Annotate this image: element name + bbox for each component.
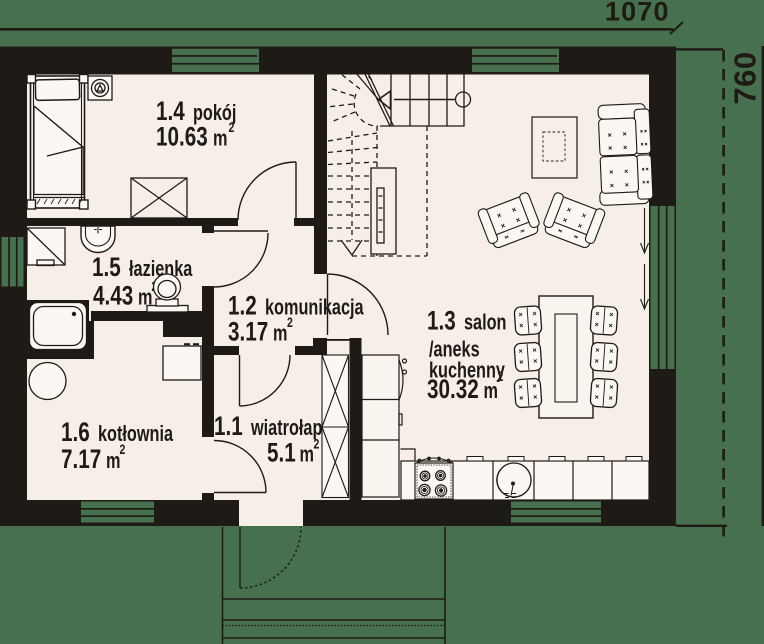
- svg-text:2: 2: [120, 442, 126, 458]
- svg-text:1.6: 1.6: [61, 418, 90, 448]
- svg-text:kotłownia: kotłownia: [98, 421, 174, 446]
- svg-text:m: m: [300, 442, 314, 467]
- svg-text:7.17: 7.17: [61, 445, 101, 475]
- svg-text:1.5: 1.5: [92, 253, 121, 283]
- svg-text:1.3: 1.3: [427, 306, 456, 336]
- svg-text:2: 2: [314, 436, 320, 452]
- svg-text:5.1: 5.1: [267, 438, 296, 468]
- svg-text:m: m: [106, 448, 120, 473]
- svg-text:10.63: 10.63: [156, 122, 208, 152]
- svg-text:4.43: 4.43: [93, 281, 133, 311]
- svg-text:2: 2: [498, 369, 504, 385]
- svg-text:komunikacja: komunikacja: [265, 295, 364, 320]
- svg-text:m: m: [273, 321, 287, 346]
- svg-text:m: m: [213, 126, 227, 151]
- svg-text:2: 2: [229, 120, 235, 136]
- svg-text:2: 2: [287, 315, 293, 331]
- svg-text:1070: 1070: [605, 0, 670, 27]
- svg-text:wiatrołap: wiatrołap: [250, 415, 322, 440]
- svg-text:1.1: 1.1: [214, 412, 243, 442]
- svg-text:30.32: 30.32: [427, 375, 479, 405]
- svg-text:3.17: 3.17: [228, 317, 268, 347]
- svg-text:salon: salon: [464, 310, 506, 335]
- svg-text:m: m: [484, 378, 498, 403]
- svg-text:760: 760: [728, 51, 763, 104]
